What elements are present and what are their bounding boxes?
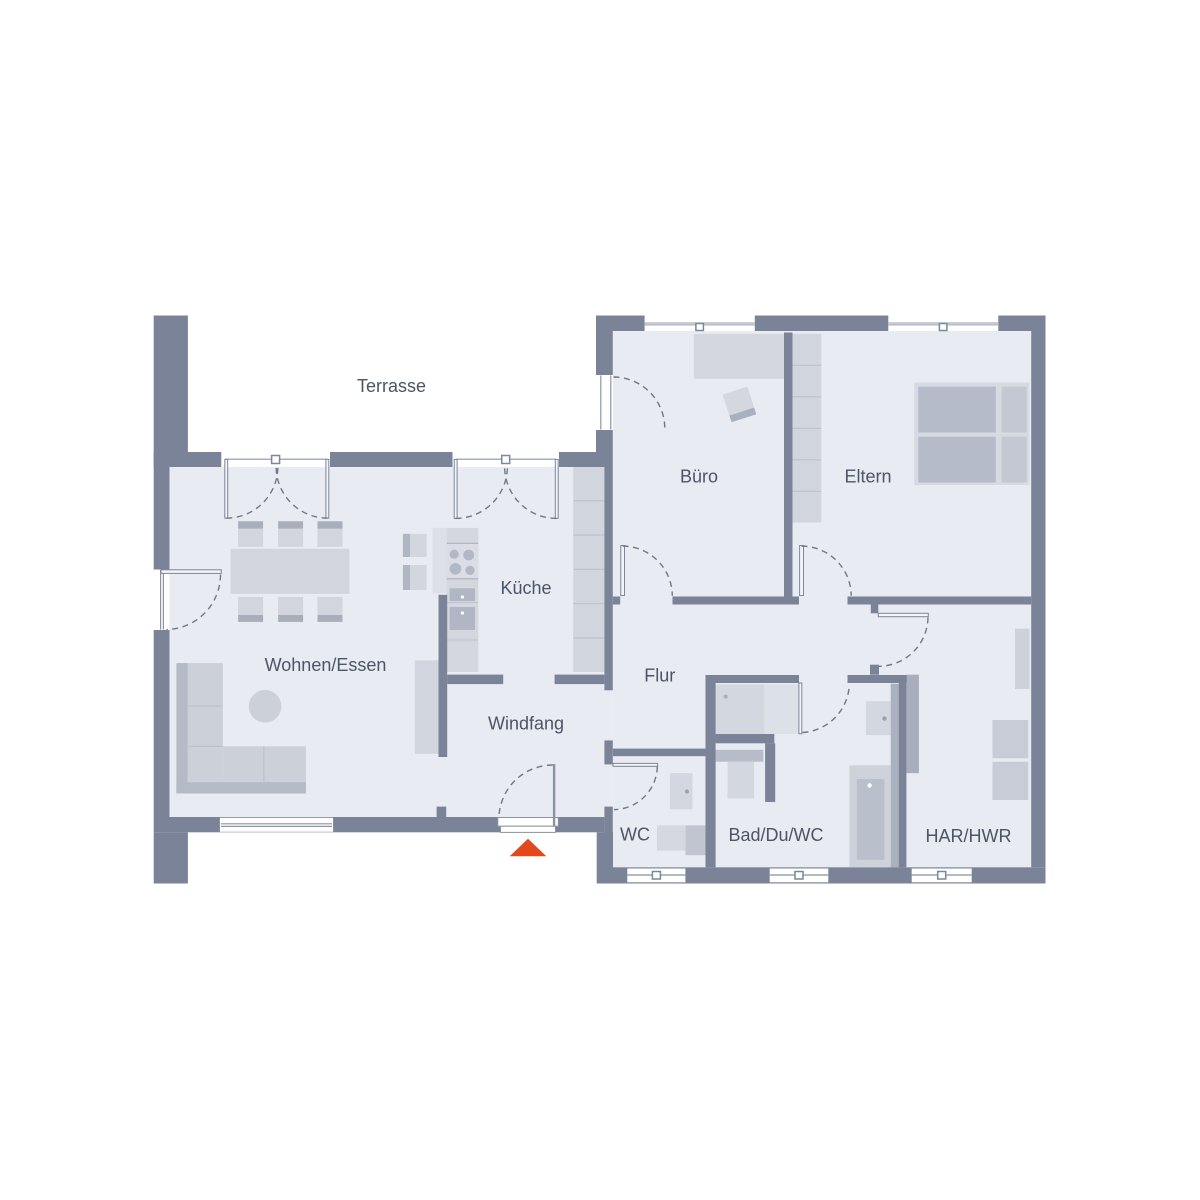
svg-text:Wohnen/Essen: Wohnen/Essen: [265, 655, 387, 675]
svg-text:Küche: Küche: [500, 578, 551, 598]
svg-text:Eltern: Eltern: [844, 467, 891, 487]
svg-text:Windfang: Windfang: [488, 714, 564, 734]
svg-text:WC: WC: [620, 825, 650, 845]
svg-text:HAR/HWR: HAR/HWR: [926, 826, 1012, 846]
svg-text:Terrasse: Terrasse: [357, 376, 426, 396]
svg-text:Flur: Flur: [644, 666, 675, 686]
svg-text:Büro: Büro: [680, 467, 718, 487]
svg-text:Bad/Du/WC: Bad/Du/WC: [728, 825, 823, 845]
